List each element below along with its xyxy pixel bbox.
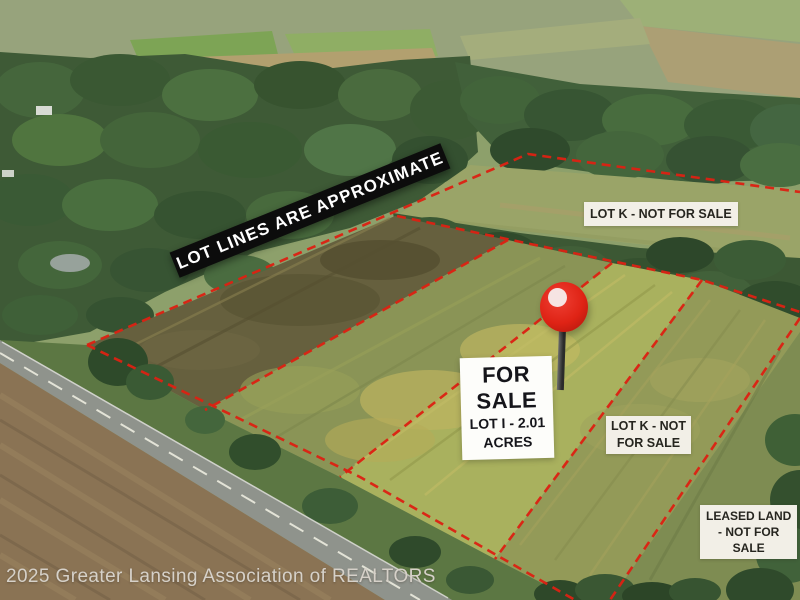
- label-lot-k-right: LOT K - NOT FOR SALE: [606, 416, 691, 454]
- map-pin-icon: [540, 282, 588, 332]
- pond: [50, 254, 90, 272]
- label-lot-k-top-text: LOT K - NOT FOR SALE: [590, 207, 732, 221]
- aerial-photo-background: [0, 0, 800, 600]
- label-lot-k-right-line1: LOT K - NOT: [611, 418, 686, 435]
- label-lot-k-top: LOT K - NOT FOR SALE: [584, 202, 738, 226]
- label-leased-line1: LEASED LAND: [706, 508, 791, 524]
- realtor-credit: 2025 Greater Lansing Association of REAL…: [6, 566, 436, 588]
- label-lot-k-right-line2: FOR SALE: [611, 435, 686, 452]
- farm-house: [2, 170, 14, 177]
- for-sale-line1: FOR: [460, 361, 553, 389]
- label-leased-line3: SALE: [706, 540, 791, 556]
- listing-photo: LOT LINES ARE APPROXIMATE LOT K - NOT FO…: [0, 0, 800, 600]
- farm-house: [36, 106, 52, 115]
- label-leased-land: LEASED LAND - NOT FOR SALE: [700, 505, 797, 559]
- for-sale-line2: SALE: [460, 387, 553, 415]
- for-sale-line3: LOT I - 2.01: [461, 413, 553, 434]
- for-sale-line4: ACRES: [462, 432, 554, 453]
- realtor-credit-text: 2025 Greater Lansing Association of REAL…: [6, 566, 436, 587]
- label-leased-line2: - NOT FOR: [706, 524, 791, 540]
- for-sale-sign: FOR SALE LOT I - 2.01 ACRES: [460, 356, 555, 460]
- map-pin-highlight: [548, 288, 567, 307]
